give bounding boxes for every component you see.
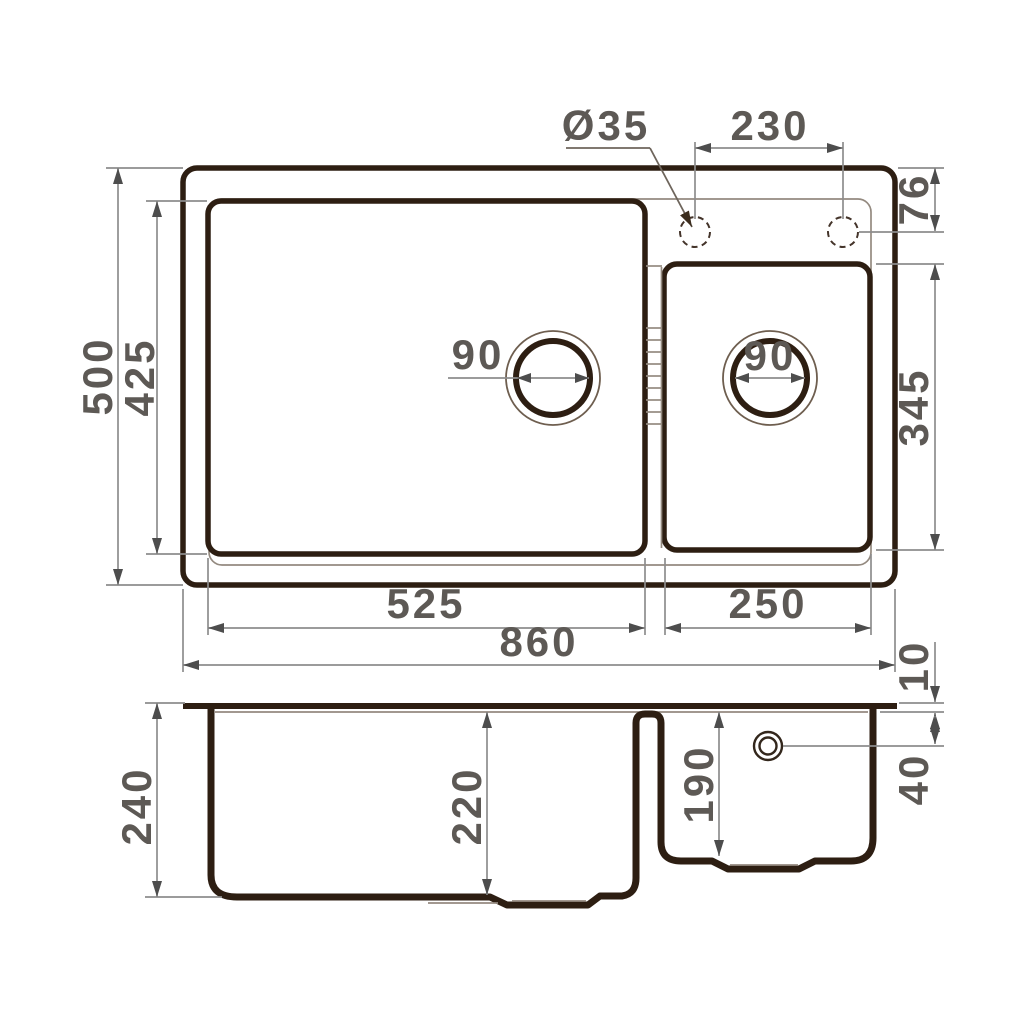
dim-main-drain-label: 90: [452, 331, 505, 378]
dim-secondary-bowl-width-label: 250: [728, 580, 807, 627]
dim-main-bowl-width-label: 525: [386, 580, 465, 627]
dim-secondary-drain: 90: [735, 332, 805, 383]
dim-secondary-drain-label: 90: [744, 332, 797, 379]
divider-ridges: [646, 266, 662, 548]
dim-secondary-bowl-depth: 345: [876, 264, 944, 550]
dim-main-bowl-width: 525: [208, 558, 645, 635]
dim-secondary-bowl-depth-label: 345: [890, 367, 937, 446]
side-view: [183, 706, 897, 905]
dim-secondary-bowl-width: 250: [665, 554, 871, 635]
callout-faucet-hole: Ø35: [562, 102, 692, 227]
dim-overall-height: 240: [113, 703, 222, 897]
overflow-hole: [754, 732, 782, 760]
dim-overall-height-label: 240: [113, 766, 160, 845]
dim-overall-depth-label: 500: [74, 336, 121, 415]
sink-drawing-svg: 500 425 Ø35 230 76: [0, 0, 1024, 1024]
faucet-hole-right: [828, 217, 858, 247]
secondary-bowl-outline: [664, 264, 870, 550]
dim-hole-offset-label: 76: [890, 173, 937, 226]
faucet-hole-left: [680, 217, 710, 247]
dim-overflow-offset-label: 40: [890, 753, 937, 806]
inner-rim-contour: [209, 199, 871, 565]
dim-secondary-bowl-height-label: 190: [675, 744, 722, 823]
dim-rim-thickness: 10: [880, 640, 944, 728]
dim-main-bowl-depth-label: 425: [116, 337, 163, 416]
dim-rim-thickness-label: 10: [890, 640, 937, 693]
dim-overall-width-label: 860: [499, 618, 578, 665]
dim-main-bowl-depth: 425: [116, 201, 207, 554]
dim-hole-spacing-label: 230: [730, 102, 809, 149]
dim-main-bowl-height: 220: [443, 712, 490, 895]
dim-main-bowl-height-label: 220: [443, 766, 490, 845]
technical-drawing: 500 425 Ø35 230 76: [0, 0, 1024, 1024]
dim-secondary-bowl-height: 190: [675, 712, 722, 856]
dim-hole-spacing: 230: [695, 102, 843, 219]
dim-overflow-offset: 40: [783, 716, 944, 805]
callout-faucet-hole-label: Ø35: [562, 102, 650, 149]
